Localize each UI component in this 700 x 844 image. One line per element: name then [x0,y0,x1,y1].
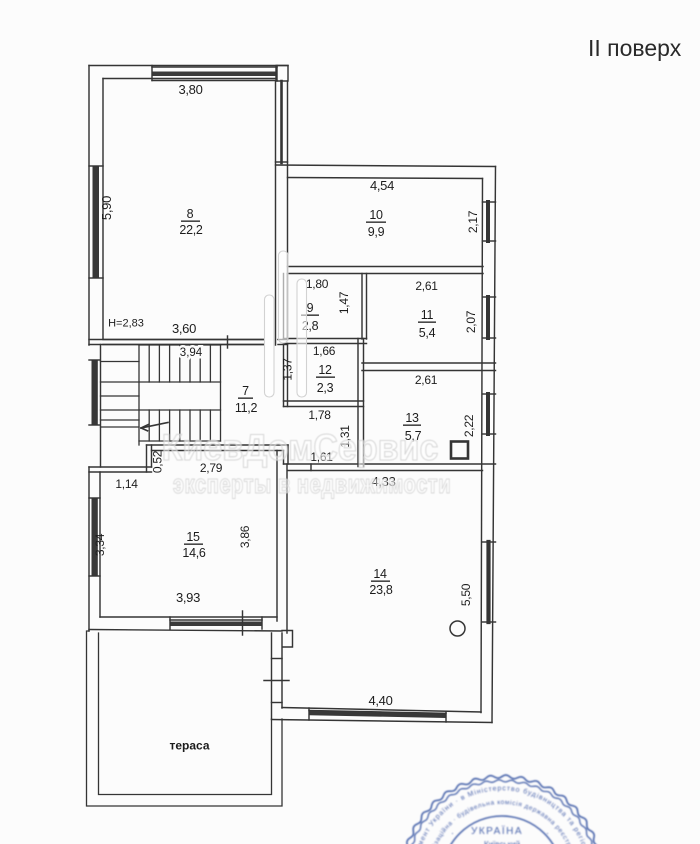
svg-text:эксперты в недвижимости: эксперты в недвижимости [173,470,451,499]
svg-text:Н=2,83: Н=2,83 [108,318,144,330]
svg-text:2,07: 2,07 [464,310,478,333]
svg-text:2,61: 2,61 [415,373,438,387]
svg-text:4,40: 4,40 [368,693,392,708]
svg-text:7: 7 [242,384,249,398]
svg-text:1,78: 1,78 [308,408,331,422]
svg-text:3,80: 3,80 [178,82,202,97]
svg-text:4,54: 4,54 [370,178,394,193]
svg-text:·: · [546,828,549,838]
svg-text:Київський: Київський [484,840,520,844]
svg-text:·: · [451,828,454,838]
svg-text:3,34: 3,34 [93,533,107,556]
svg-text:УКРАЇНА: УКРАЇНА [471,825,523,837]
svg-text:КиевДомСервис: КиевДомСервис [162,427,439,469]
svg-text:2,22: 2,22 [462,414,476,437]
svg-text:12: 12 [318,363,332,377]
svg-text:2,17: 2,17 [466,210,480,233]
svg-text:5,50: 5,50 [459,583,473,606]
svg-text:9,9: 9,9 [368,225,385,239]
svg-text:23,8: 23,8 [369,583,392,597]
svg-text:5,90: 5,90 [99,196,114,220]
svg-text:II поверх: II поверх [588,35,682,61]
svg-text:3,93: 3,93 [176,590,200,605]
svg-text:2,3: 2,3 [317,381,334,395]
svg-text:1,80: 1,80 [306,277,329,291]
svg-text:1,14: 1,14 [115,477,138,491]
svg-text:22,2: 22,2 [179,223,202,237]
svg-text:9: 9 [307,301,314,315]
svg-text:тераса: тераса [169,739,209,753]
svg-text:11,2: 11,2 [235,401,258,415]
svg-text:3,60: 3,60 [172,321,196,336]
svg-text:8: 8 [187,207,194,221]
svg-text:10: 10 [369,208,383,222]
svg-text:13: 13 [405,411,419,425]
svg-text:3,86: 3,86 [238,525,252,548]
svg-text:3,94: 3,94 [180,347,203,359]
svg-text:11: 11 [421,308,434,322]
svg-text:14: 14 [373,567,387,581]
svg-text:1,47: 1,47 [337,291,351,314]
svg-text:14,6: 14,6 [182,546,205,560]
svg-text:1,37: 1,37 [281,358,295,381]
svg-text:1,66: 1,66 [313,344,336,358]
svg-text:5,4: 5,4 [419,326,436,340]
svg-text:15: 15 [186,530,200,544]
svg-text:2,61: 2,61 [415,279,438,293]
